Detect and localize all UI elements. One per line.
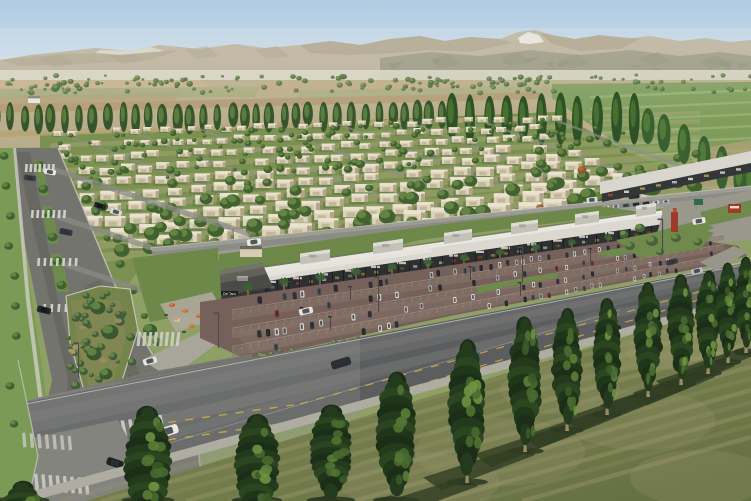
svg-text:Del Taco: Del Taco: [223, 292, 236, 296]
